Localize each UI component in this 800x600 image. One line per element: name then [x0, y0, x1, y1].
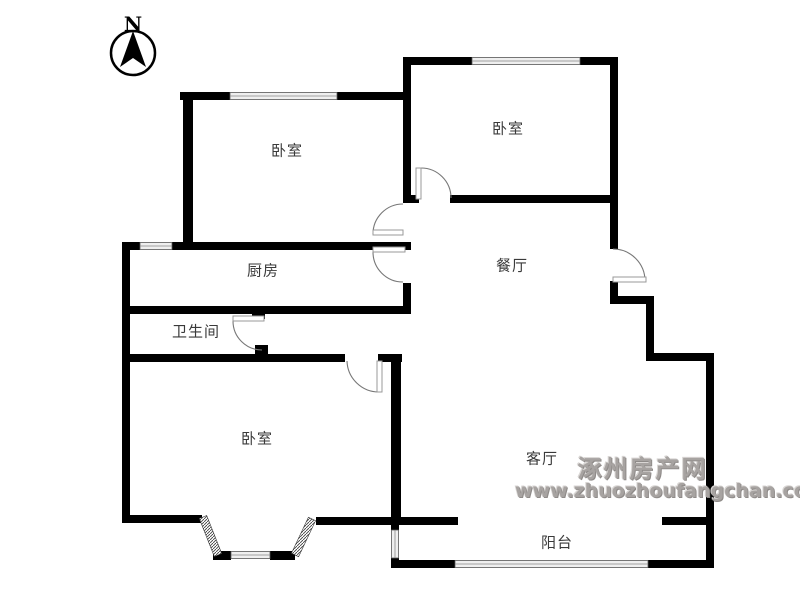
room-label-bathroom: 卫生间 [172, 321, 220, 342]
room-label-dining: 餐厅 [496, 255, 528, 276]
room-label-bedroom-top-right: 卧室 [492, 118, 524, 139]
door-leaf-bedroom-bottom-left [377, 361, 382, 392]
room-label-living: 客厅 [526, 448, 558, 469]
door-arc-kitchen [373, 252, 403, 282]
compass [111, 31, 155, 75]
compass-needle-icon [120, 31, 146, 67]
door-leaf-bedroom-top-left [373, 230, 403, 235]
room-label-balcony: 阳台 [541, 532, 573, 553]
walls [122, 57, 714, 568]
door-leaf-entrance [613, 277, 646, 282]
room-label-bedroom-bottom-left: 卧室 [241, 428, 273, 449]
room-label-kitchen: 厨房 [247, 260, 279, 281]
room-label-bedroom-top-left: 卧室 [271, 140, 303, 161]
bay-window [199, 516, 315, 557]
door-arc-entrance [613, 249, 645, 281]
floorplan-canvas [0, 0, 800, 600]
floorplan-page: N 卧室 卧室 卧室 厨房 卫生间 餐厅 客厅 阳台 涿州房产网 www.zhu… [0, 0, 800, 600]
door-leaf-bathroom [233, 316, 264, 321]
compass-north-label: N [124, 12, 142, 36]
door-leaf-kitchen [373, 247, 405, 252]
door-leaf-bedroom-top-right [416, 168, 421, 199]
door-arc-bedroom-bottom-left [347, 361, 379, 392]
door-arc-bedroom-top-right [421, 168, 451, 198]
